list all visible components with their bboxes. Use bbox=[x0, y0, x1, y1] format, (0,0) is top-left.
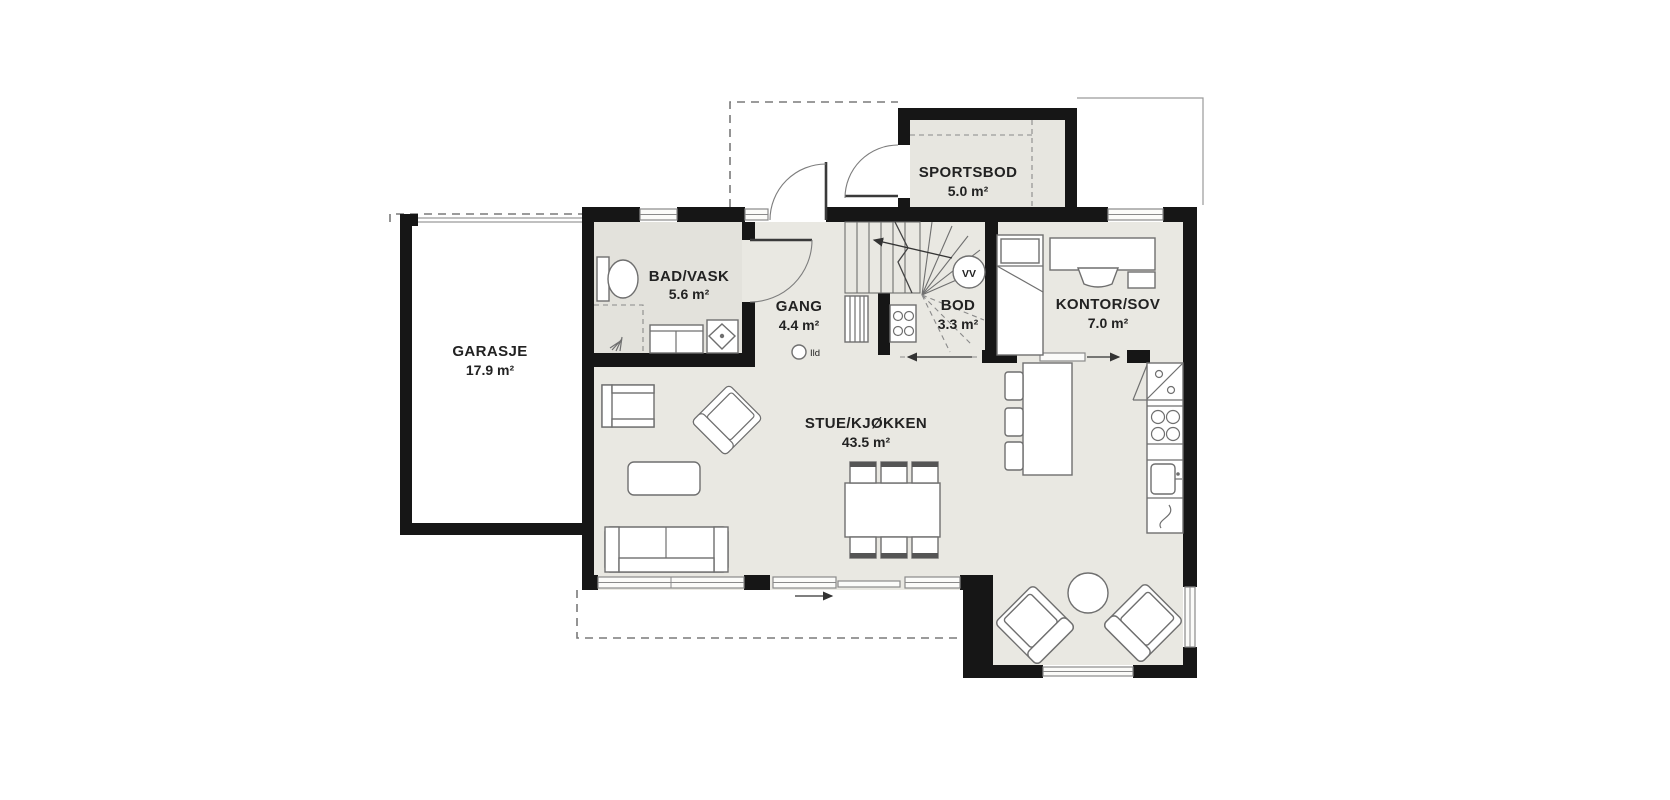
room-area: 3.3 m² bbox=[938, 316, 979, 332]
dining-chair bbox=[850, 537, 876, 558]
fireplace-label: Ild bbox=[810, 348, 820, 359]
garage-door bbox=[418, 218, 582, 222]
bed bbox=[997, 235, 1043, 355]
water-heater-icon: VV bbox=[953, 256, 985, 288]
bar-stools bbox=[1005, 372, 1023, 470]
window bbox=[640, 209, 677, 220]
room-name: KONTOR/SOV bbox=[1056, 296, 1161, 313]
window bbox=[905, 577, 960, 588]
floor-plan: VV Ild bbox=[0, 0, 1670, 800]
dining-chair bbox=[912, 462, 938, 483]
window bbox=[773, 577, 836, 588]
dining-chair bbox=[881, 537, 907, 558]
bar-stool bbox=[1005, 408, 1023, 436]
terrace-outline bbox=[577, 590, 963, 638]
dining-chair bbox=[912, 537, 938, 558]
washing-machine-icon bbox=[650, 325, 703, 353]
armchair bbox=[602, 385, 654, 427]
desk-chair bbox=[1078, 268, 1118, 287]
room-area: 5.0 m² bbox=[948, 183, 989, 199]
round-table bbox=[1068, 573, 1108, 613]
coffee-table bbox=[628, 462, 700, 495]
floor-plan-canvas: VV Ild bbox=[0, 0, 1670, 800]
stove-icon bbox=[890, 305, 916, 342]
room-name: SPORTSBOD bbox=[919, 164, 1018, 181]
window bbox=[1043, 667, 1133, 676]
room-name: BAD/VASK bbox=[649, 268, 729, 285]
kitchen-island bbox=[1023, 363, 1072, 475]
entry-door bbox=[770, 162, 826, 220]
window bbox=[1185, 587, 1195, 647]
dining-chair bbox=[850, 462, 876, 483]
sofa bbox=[605, 527, 728, 572]
bar-stool bbox=[1005, 442, 1023, 470]
toilet-icon bbox=[597, 257, 638, 301]
window bbox=[1108, 209, 1163, 220]
room-name: GANG bbox=[776, 298, 823, 315]
wardrobe-cabinet bbox=[845, 296, 868, 342]
room-area: 43.5 m² bbox=[842, 434, 891, 450]
kitchen-counter bbox=[1147, 363, 1183, 533]
dining-chair bbox=[881, 462, 907, 483]
bar-stool bbox=[1005, 372, 1023, 400]
shower-icon bbox=[707, 320, 738, 353]
window bbox=[598, 577, 744, 588]
water-heater-label: VV bbox=[962, 268, 976, 280]
room-name: STUE/KJØKKEN bbox=[805, 415, 927, 432]
room-name: BOD bbox=[941, 297, 976, 314]
room-label-garasje: GARASJE 17.9 m² bbox=[452, 343, 527, 378]
dining-table bbox=[845, 483, 940, 537]
room-area: 4.4 m² bbox=[779, 317, 820, 333]
room-area: 7.0 m² bbox=[1088, 315, 1129, 331]
room-area: 5.6 m² bbox=[669, 286, 710, 302]
room-area: 17.9 m² bbox=[466, 362, 515, 378]
sportsbod-door bbox=[845, 145, 898, 198]
roof-overhang-outline bbox=[390, 98, 1203, 222]
room-name: GARASJE bbox=[452, 343, 527, 360]
window bbox=[745, 209, 768, 220]
